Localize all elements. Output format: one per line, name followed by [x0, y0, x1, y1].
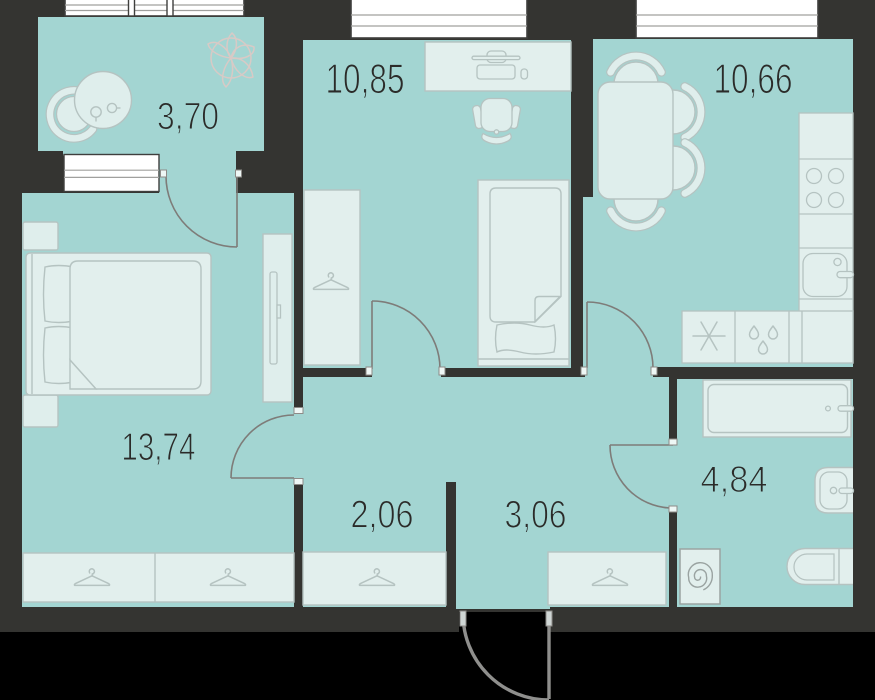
svg-text:10,85: 10,85 — [326, 55, 405, 102]
svg-text:10,66: 10,66 — [714, 55, 793, 102]
svg-text:13,74: 13,74 — [121, 426, 195, 469]
svg-text:3,06: 3,06 — [505, 494, 567, 537]
svg-text:4,84: 4,84 — [701, 459, 768, 500]
svg-text:3,70: 3,70 — [157, 96, 219, 138]
svg-text:2,06: 2,06 — [351, 494, 414, 537]
